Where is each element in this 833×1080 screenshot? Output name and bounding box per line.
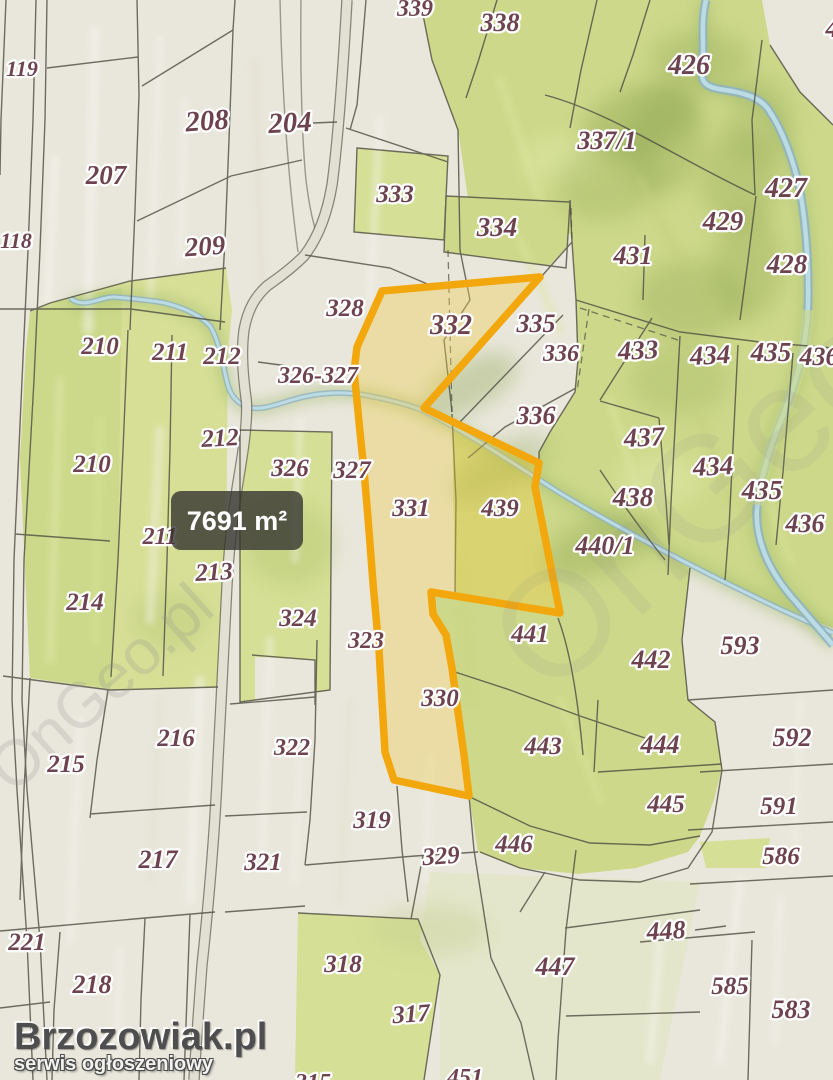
- svg-text:336: 336: [516, 401, 556, 430]
- svg-text:585: 585: [711, 973, 749, 1000]
- svg-text:209: 209: [183, 230, 227, 263]
- svg-text:447: 447: [535, 952, 576, 981]
- svg-text:445: 445: [646, 791, 685, 818]
- svg-text:442: 442: [631, 645, 671, 674]
- svg-text:7691 m²: 7691 m²: [187, 506, 288, 536]
- svg-text:336: 336: [542, 341, 579, 367]
- svg-text:446: 446: [494, 831, 533, 858]
- svg-text:437: 437: [622, 421, 667, 453]
- svg-text:214: 214: [65, 589, 104, 616]
- svg-text:335: 335: [516, 309, 556, 338]
- svg-text:441: 441: [510, 621, 549, 648]
- svg-text:324: 324: [278, 605, 317, 632]
- svg-text:332: 332: [429, 310, 472, 341]
- svg-text:204: 204: [266, 106, 312, 140]
- svg-text:583: 583: [772, 995, 811, 1024]
- svg-text:213: 213: [194, 558, 234, 587]
- svg-text:435: 435: [741, 475, 783, 505]
- svg-text:318: 318: [323, 951, 362, 978]
- svg-text:428: 428: [766, 249, 808, 279]
- svg-text:208: 208: [183, 103, 230, 138]
- svg-text:317: 317: [390, 1000, 432, 1030]
- svg-text:326-327: 326-327: [277, 363, 359, 389]
- svg-text:326: 326: [270, 455, 309, 482]
- svg-text:434: 434: [691, 450, 734, 482]
- svg-text:210: 210: [80, 333, 119, 360]
- svg-text:322: 322: [273, 735, 310, 761]
- svg-text:323: 323: [347, 628, 384, 654]
- svg-text:431: 431: [613, 241, 653, 270]
- svg-text:327: 327: [332, 457, 372, 484]
- svg-text:436: 436: [799, 342, 833, 371]
- svg-text:329: 329: [420, 842, 461, 872]
- svg-text:338: 338: [480, 8, 520, 37]
- svg-text:440/1: 440/1: [574, 531, 634, 560]
- svg-text:319: 319: [352, 807, 391, 834]
- svg-text:118: 118: [0, 228, 32, 253]
- svg-text:330: 330: [420, 685, 459, 712]
- svg-text:216: 216: [156, 725, 195, 752]
- svg-text:586: 586: [762, 843, 800, 870]
- svg-text:328: 328: [325, 295, 364, 322]
- svg-text:427: 427: [764, 173, 808, 204]
- svg-text:434: 434: [688, 339, 731, 371]
- svg-text:210: 210: [72, 451, 111, 478]
- svg-text:221: 221: [7, 929, 46, 956]
- svg-text:426: 426: [667, 50, 710, 81]
- svg-text:215: 215: [46, 751, 85, 778]
- svg-text:321: 321: [243, 849, 282, 876]
- svg-text:333: 333: [375, 181, 414, 208]
- svg-text:334: 334: [476, 212, 518, 242]
- svg-text:339: 339: [396, 0, 433, 22]
- svg-text:591: 591: [760, 793, 798, 820]
- svg-text:439: 439: [480, 495, 519, 522]
- svg-text:444: 444: [640, 730, 680, 759]
- svg-text:435: 435: [750, 337, 792, 367]
- svg-text:592: 592: [773, 723, 812, 752]
- svg-text:443: 443: [523, 733, 562, 760]
- svg-text:436: 436: [785, 509, 825, 538]
- svg-text:331: 331: [391, 495, 430, 522]
- svg-text:212: 212: [202, 343, 241, 370]
- svg-text:217: 217: [138, 845, 179, 874]
- svg-text:119: 119: [6, 56, 38, 81]
- svg-text:207: 207: [85, 160, 128, 190]
- svg-text:433: 433: [616, 334, 659, 366]
- svg-text:211: 211: [151, 339, 188, 366]
- svg-text:212: 212: [200, 424, 240, 453]
- svg-text:218: 218: [72, 970, 112, 999]
- svg-text:448: 448: [645, 915, 686, 946]
- svg-text:425: 425: [825, 14, 833, 43]
- svg-text:438: 438: [612, 482, 654, 512]
- svg-text:315: 315: [294, 1070, 331, 1080]
- svg-text:451: 451: [446, 1065, 483, 1080]
- svg-text:593: 593: [721, 631, 760, 660]
- svg-text:429: 429: [702, 206, 744, 236]
- svg-text:337/1: 337/1: [576, 126, 636, 155]
